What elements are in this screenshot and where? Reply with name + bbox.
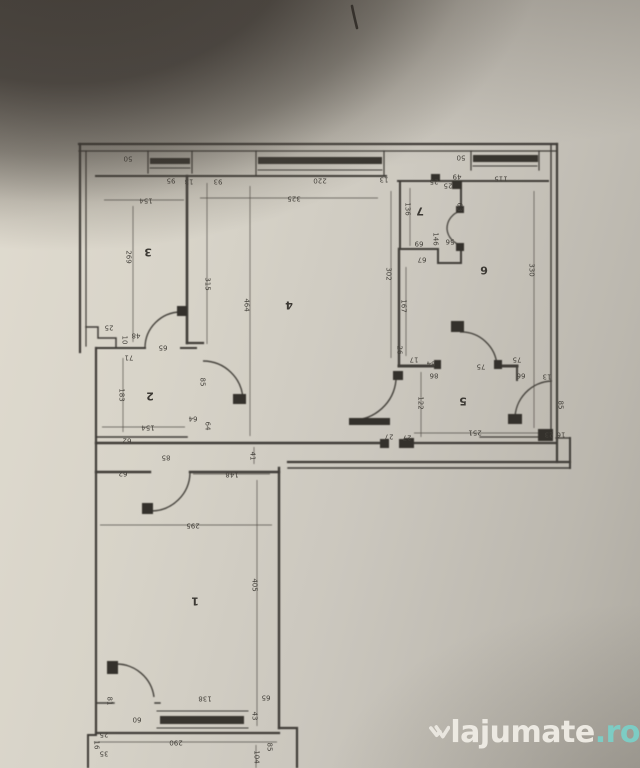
room-number: 4 [285,300,293,311]
room-number: 1 [191,596,199,607]
dimension-label: 62 [119,470,128,477]
dimension-label: 71 [125,354,134,361]
dimension-label: 64 [204,422,211,431]
dimension-label: 183 [118,388,125,401]
dimension-label: 66 [517,372,526,379]
dimension-label: 86 [430,372,439,379]
dimension-label: 136 [404,202,411,215]
dimension-label: 50 [124,155,133,162]
dimension-label: 269 [125,250,132,263]
dimension-label: 81 [106,697,113,706]
dimension-label: 23 [545,431,554,438]
dimension-label: 35 [100,750,109,757]
dimension-label: 13 [380,176,389,183]
dimension-label: 27 [385,433,394,440]
dimension-label: 63 [456,203,463,212]
watermark-tld: .ro [595,715,640,750]
dimension-label: 17 [410,356,419,363]
dimension-label: 25 [105,324,114,331]
dimension-label: 62 [123,437,132,444]
dimension-label: 69 [415,240,424,247]
room-number: 6 [480,265,488,276]
dimension-label: 75 [477,363,486,370]
dimension-label: 290 [169,739,182,746]
dimension-label: 25 [100,731,109,738]
dimension-label: 302 [385,267,392,280]
dimension-label: 25 [430,178,439,185]
floorplan-photo: { "watermark": { "brand": "lajumate", "t… [0,0,640,768]
dimension-label: 27 [403,434,412,441]
watermark-brand: lajumate [450,715,594,750]
dimension-label: 84 [427,360,436,367]
dimension-label: 405 [251,578,258,591]
dimension-label: 60 [133,716,142,723]
dimension-label: 85 [266,743,273,752]
dimension-label: 26 [396,346,403,355]
dimension-label: 122 [417,396,424,409]
dimension-label: 464 [243,298,250,311]
dimension-label: 220 [313,177,326,184]
dimension-label: 85 [162,454,171,461]
dimension-label: 167 [400,299,407,312]
dimension-label: 85 [199,378,206,387]
dimension-label: 16 [93,741,100,750]
room-number: 5 [459,396,467,407]
dimension-label: 146 [432,232,439,245]
dimension-label: 104 [253,750,260,763]
dimension-label: 10 [121,336,128,345]
dimension-label: 13 [543,373,552,380]
watermark: lajumate.ro [428,698,640,766]
dimension-label: 50 [457,154,466,161]
dimension-label: 49 [453,173,462,180]
lajumate-logo-icon [428,703,450,761]
dimension-label: 56 [446,238,455,245]
dimension-label: 13 [185,178,194,185]
room-number: 3 [144,247,152,258]
dimension-label: 115 [494,175,507,182]
dimension-label: 315 [204,277,211,290]
watermark-text: lajumate.ro [450,715,640,750]
dimension-label: 93 [214,178,223,185]
dimension-label: 148 [225,471,238,478]
dimension-label: 154 [141,424,154,431]
dimension-label: 43 [251,712,258,721]
dimension-label: 16 [557,431,566,438]
dimension-label: 295 [186,522,199,529]
dimension-label: 65 [262,694,271,701]
dimension-label: 67 [418,256,427,263]
dimension-label: 325 [287,195,300,202]
dimension-label: 330 [528,263,535,276]
dimension-label: 48 [132,332,141,339]
dimension-label: 65 [159,344,168,351]
dimension-labels-layer: 5095131549322032513254925501152693154641… [0,0,640,768]
dimension-label: 64 [189,415,198,422]
dimension-label: 154 [139,197,152,204]
dimension-label: 85 [557,401,564,410]
room-number: 2 [146,391,154,402]
dimension-label: 251 [468,429,481,436]
photo-background: 5095131549322032513254925501152693154641… [0,0,640,768]
dimension-label: 138 [198,695,211,702]
dimension-label: 75 [513,356,522,363]
dimension-label: 25 [444,182,453,189]
dimension-label: 95 [167,177,176,184]
dimension-label: 41 [249,452,256,461]
room-number: 7 [416,206,424,217]
